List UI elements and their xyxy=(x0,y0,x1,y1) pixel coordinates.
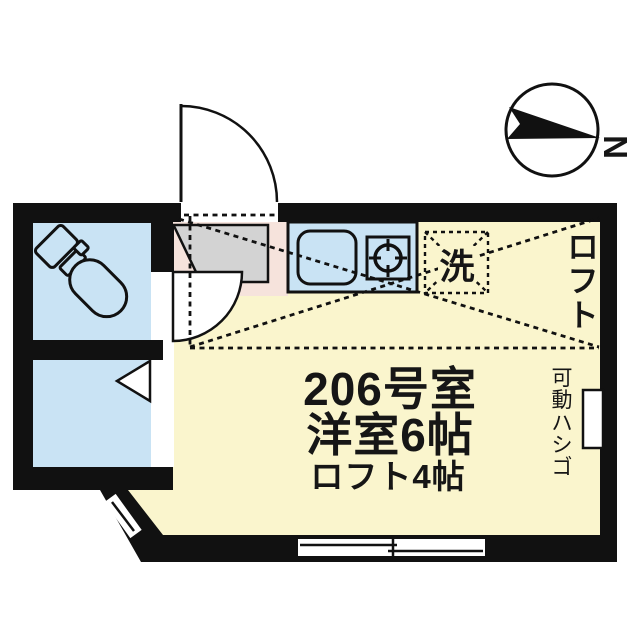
svg-text:動: 動 xyxy=(552,389,573,412)
svg-text:フ: フ xyxy=(568,264,599,299)
svg-text:ト: ト xyxy=(568,298,599,333)
entrance-door xyxy=(181,104,277,202)
north-label: N xyxy=(597,135,634,159)
toilet-door-opening xyxy=(151,272,174,340)
ladder-label: 可 動 ハ シ ゴ xyxy=(552,367,573,479)
window-bottom xyxy=(298,539,485,556)
room-number-label: 206号室 xyxy=(303,363,477,415)
room-type-label: 洋室6帖 xyxy=(306,409,474,461)
svg-text:ゴ: ゴ xyxy=(552,456,573,479)
room-info: 206号室 洋室6帖 ロフト4帖 xyxy=(303,363,477,495)
loft-size-label: ロフト4帖 xyxy=(310,458,465,495)
floor-plan-canvas: 洗 N 206号室 洋室6帖 ロフト4帖 ロ フ ト 可 動 ハ シ ゴ xyxy=(0,0,640,640)
ladder-symbol xyxy=(583,390,603,448)
floor-plan-page: 洗 N 206号室 洋室6帖 ロフト4帖 ロ フ ト 可 動 ハ シ ゴ xyxy=(0,0,640,640)
svg-text:可: 可 xyxy=(552,367,573,390)
stove-icon xyxy=(367,237,409,279)
washer-label: 洗 xyxy=(439,248,474,287)
loft-label: ロ フ ト xyxy=(568,230,599,333)
bathroom-door-opening xyxy=(151,360,174,467)
north-arrow-icon xyxy=(507,107,600,139)
entrance-door-opening xyxy=(181,203,278,222)
svg-text:ハ: ハ xyxy=(552,412,573,435)
svg-text:ロ: ロ xyxy=(568,230,599,265)
north-indicator: N xyxy=(506,84,634,176)
svg-text:シ: シ xyxy=(552,434,573,457)
bathroom-door-opening-2 xyxy=(163,340,174,360)
